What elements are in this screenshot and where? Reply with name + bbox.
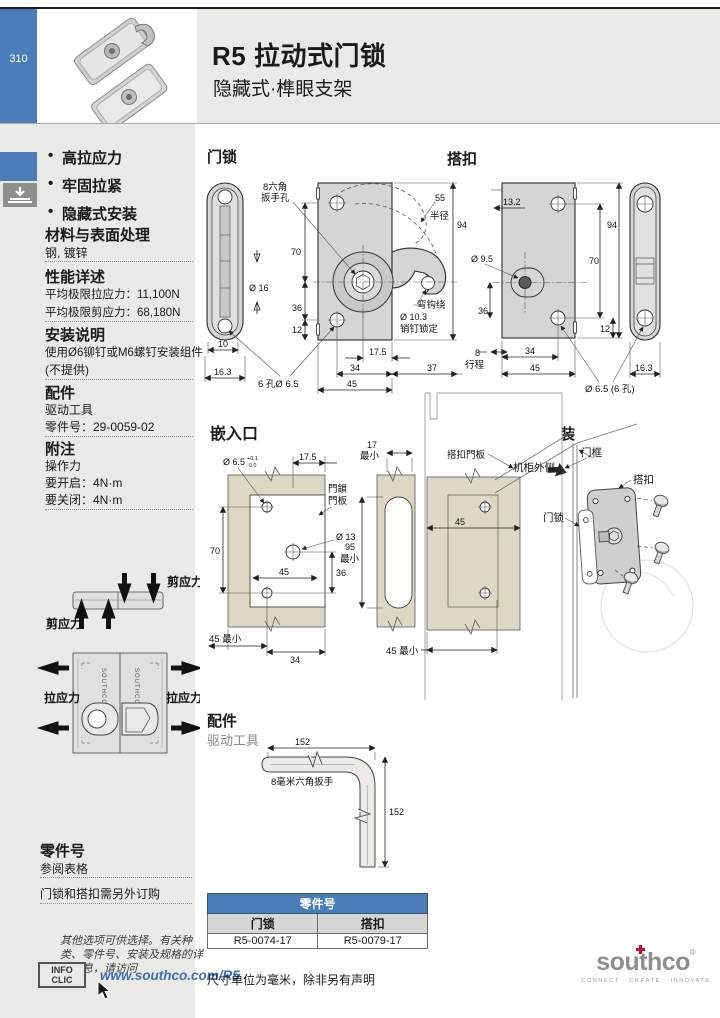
table-val-keeper: R5-0079-17 bbox=[318, 934, 428, 949]
dim: 70 bbox=[291, 247, 301, 257]
performance-line: 平均极限拉应力：11,100N bbox=[45, 286, 180, 302]
wrench-drawing: 152 8毫米六角扳手 152 bbox=[195, 735, 470, 880]
dim: 12 bbox=[292, 325, 302, 335]
dim: 45 bbox=[530, 363, 540, 373]
performance-heading: 性能详述 bbox=[45, 266, 105, 287]
feature-item: •隐藏式安装 bbox=[48, 203, 137, 224]
mortise-mount-icon bbox=[3, 183, 37, 207]
southco-tagline: CONNECT · CREATE · INNOVATE bbox=[576, 978, 716, 984]
part-number-table: 零件号 门锁 搭扣 R5-0074-17 R5-0079-17 bbox=[207, 893, 428, 949]
label-keeper: 搭扣 bbox=[633, 473, 654, 486]
label-cabinet-outside: 机柜外侧 bbox=[513, 461, 555, 474]
divider bbox=[45, 379, 193, 380]
notes-line: 操作力 bbox=[45, 457, 81, 474]
dim: 37 bbox=[427, 363, 437, 373]
feature-label: 隐藏式安装 bbox=[62, 203, 137, 224]
dim: 152 bbox=[389, 807, 404, 817]
dim: 17.5 bbox=[299, 452, 317, 462]
force-diagrams: 剪应力 剪应力 SOUTHCO SOUTHCO 拉应力 拉应力 bbox=[20, 550, 200, 760]
dim: 94 bbox=[457, 220, 467, 230]
registered-mark: ® bbox=[690, 948, 696, 957]
partnumbers-heading: 零件号 bbox=[40, 840, 85, 861]
tension-diagram: SOUTHCO SOUTHCO 拉应力 拉应力 bbox=[44, 653, 200, 753]
title-text: 拉动式门锁 bbox=[254, 41, 387, 71]
table-title: 零件号 bbox=[208, 894, 428, 914]
notes-heading: 附注 bbox=[45, 438, 75, 459]
southco-logo-plus-icon bbox=[636, 945, 645, 954]
dim: 13.2 bbox=[503, 197, 521, 207]
dim: 36 bbox=[478, 306, 488, 316]
tool-section-heading: 配件 bbox=[207, 710, 237, 731]
label-keeper-panel: 搭扣門板 bbox=[447, 449, 486, 461]
page-title: R5 拉动式门锁 bbox=[212, 36, 387, 73]
notes-line: 要开启：4N·m bbox=[45, 474, 122, 491]
divider bbox=[45, 261, 193, 262]
dim: 16.3 bbox=[214, 367, 232, 377]
keeper-door-panel: 45 bbox=[427, 469, 520, 634]
dim: 36 bbox=[336, 568, 346, 578]
divider bbox=[45, 509, 193, 510]
shear-label-bottom: 剪应力 bbox=[46, 616, 82, 631]
wrench-label: 8毫米六角扳手 bbox=[271, 776, 334, 788]
feature-list: •高拉应力 •牢固拉紧 •隐藏式安装 bbox=[48, 147, 137, 231]
brand-vertical: SOUTHCO bbox=[100, 668, 106, 705]
dim: Ø 16 bbox=[249, 283, 269, 293]
unit-note: 尺寸单位为毫米，除非另有声明 bbox=[207, 971, 375, 988]
info-clic-line: INFO bbox=[51, 965, 73, 975]
dim: 70 bbox=[210, 546, 220, 556]
install-line: 使用Ø6铆钉或M6螺钉安装组件 bbox=[45, 344, 203, 360]
dim: 17.5 bbox=[369, 347, 387, 357]
material-body: 钢, 镀锌 bbox=[45, 244, 88, 261]
dim: 45 bbox=[455, 517, 465, 527]
dim-min: 17 bbox=[367, 440, 377, 450]
install-line: (不提供) bbox=[45, 361, 89, 378]
material-heading: 材料与表面处理 bbox=[45, 224, 150, 245]
title-code: R5 bbox=[212, 41, 246, 71]
keeper-side-profile bbox=[630, 183, 660, 340]
cursor-icon bbox=[96, 980, 114, 1000]
dim: 34 bbox=[350, 363, 360, 373]
dim-min-word: 最小 bbox=[360, 451, 380, 462]
dim-min: 95 bbox=[345, 542, 355, 552]
dim-min-word: 最小 bbox=[340, 554, 360, 565]
accessory-heading: 配件 bbox=[45, 382, 75, 403]
divider bbox=[45, 436, 193, 437]
feature-item: •高拉应力 bbox=[48, 147, 137, 168]
table-col-keeper: 搭扣 bbox=[318, 914, 428, 934]
dim-radius-word: 半径 bbox=[430, 210, 450, 222]
install-heading: 安装说明 bbox=[45, 324, 105, 345]
dim: 94 bbox=[607, 220, 617, 230]
page-number: 310 bbox=[0, 53, 37, 65]
dim: Ø 9.5 bbox=[471, 254, 493, 264]
latch-keeper-drawing: 10 16.3 Ø 16 8六角 扳手孔 bbox=[195, 130, 720, 400]
shear-diagram: 剪应力 剪应力 bbox=[46, 573, 200, 631]
label-hook: Ø 10.3 bbox=[400, 312, 427, 322]
category-color-chip bbox=[0, 152, 37, 181]
latch-side-profile bbox=[207, 183, 243, 340]
dim: 12 bbox=[600, 324, 610, 334]
label-hex-hole: 扳手孔 bbox=[261, 192, 290, 204]
dim-travel-word: 行程 bbox=[465, 359, 485, 371]
dim: 152 bbox=[295, 737, 310, 747]
info-clic-line: CLIC bbox=[52, 975, 73, 985]
label-latch: 门锁 bbox=[543, 511, 564, 524]
dim: 34 bbox=[525, 346, 535, 356]
bullet-icon: • bbox=[48, 203, 62, 224]
dim: Ø 13 bbox=[336, 532, 356, 542]
dim-tolerance-minus: -0.0 bbox=[247, 463, 256, 469]
performance-line: 平均极限剪应力：68,180N bbox=[45, 304, 180, 320]
divider bbox=[40, 877, 192, 878]
product-photo bbox=[37, 9, 197, 123]
dim-min: 45 最小 bbox=[209, 634, 242, 645]
label-door-panel: 門鎖 bbox=[328, 483, 348, 495]
dim: 10 bbox=[218, 339, 228, 349]
dim: 36 bbox=[292, 303, 302, 313]
partnumbers-line: 参阅表格 bbox=[40, 860, 88, 877]
dim: 55 bbox=[435, 193, 445, 203]
dim: 34 bbox=[290, 655, 300, 665]
divider bbox=[45, 321, 193, 322]
dim: 16.3 bbox=[635, 363, 653, 373]
southco-logo: southco® CONNECT · CREATE · INNOVATE bbox=[576, 948, 716, 984]
cutout-sidemount-drawing: 17.5 Ø 6.5 +0.1 -0.0 門鎖 門板 Ø 13 70 45 36… bbox=[195, 388, 720, 700]
accessory-line: 驱动工具 bbox=[45, 401, 93, 418]
product-photo-box bbox=[37, 9, 197, 123]
bullet-icon: • bbox=[48, 175, 62, 196]
header-divider bbox=[0, 123, 720, 124]
screw bbox=[649, 493, 670, 518]
label-hook: 销钉锁定 bbox=[400, 323, 439, 335]
info-clic-badge[interactable]: INFO CLIC bbox=[38, 962, 86, 988]
feature-label: 牢固拉紧 bbox=[62, 175, 122, 196]
accessory-line: 零件号：29-0059-02 bbox=[45, 418, 154, 435]
bullet-icon: • bbox=[48, 147, 62, 168]
dim: 45 bbox=[279, 567, 289, 577]
catalog-page: 310 R5 拉动式门锁 隐藏式·榫眼支架 bbox=[0, 0, 720, 1018]
latch-front-view bbox=[313, 183, 457, 340]
screw bbox=[650, 540, 671, 565]
page-subtitle: 隐藏式·榫眼支架 bbox=[213, 74, 352, 101]
label-hex-hole: 8六角 bbox=[263, 181, 287, 193]
dim: 70 bbox=[589, 256, 599, 266]
label-hook: 弯钩绕 bbox=[417, 299, 446, 311]
feature-label: 高拉应力 bbox=[62, 147, 122, 168]
page-number-tab: 310 bbox=[0, 9, 37, 123]
dim-tolerance: Ø 6.5 bbox=[223, 457, 245, 467]
dim-min: 45 最小 bbox=[386, 646, 419, 657]
notes-line: 要关闭：4N·m bbox=[45, 491, 122, 508]
feature-item: •牢固拉紧 bbox=[48, 175, 137, 196]
label-door-panel: 門板 bbox=[328, 495, 348, 507]
divider bbox=[40, 903, 192, 904]
cutout-panel-slot bbox=[377, 467, 415, 631]
partnumbers-line: 门锁和搭扣需另外订购 bbox=[40, 885, 160, 902]
brand-vertical: SOUTHCO bbox=[133, 668, 139, 705]
dim-tolerance-plus: +0.1 bbox=[247, 456, 258, 462]
cutout-panel-latch bbox=[228, 467, 325, 631]
table-val-latch: R5-0074-17 bbox=[208, 934, 318, 949]
table-col-latch: 门锁 bbox=[208, 914, 318, 934]
tension-label-left: 拉应力 bbox=[44, 690, 80, 705]
dim-travel: 8 bbox=[475, 348, 480, 358]
